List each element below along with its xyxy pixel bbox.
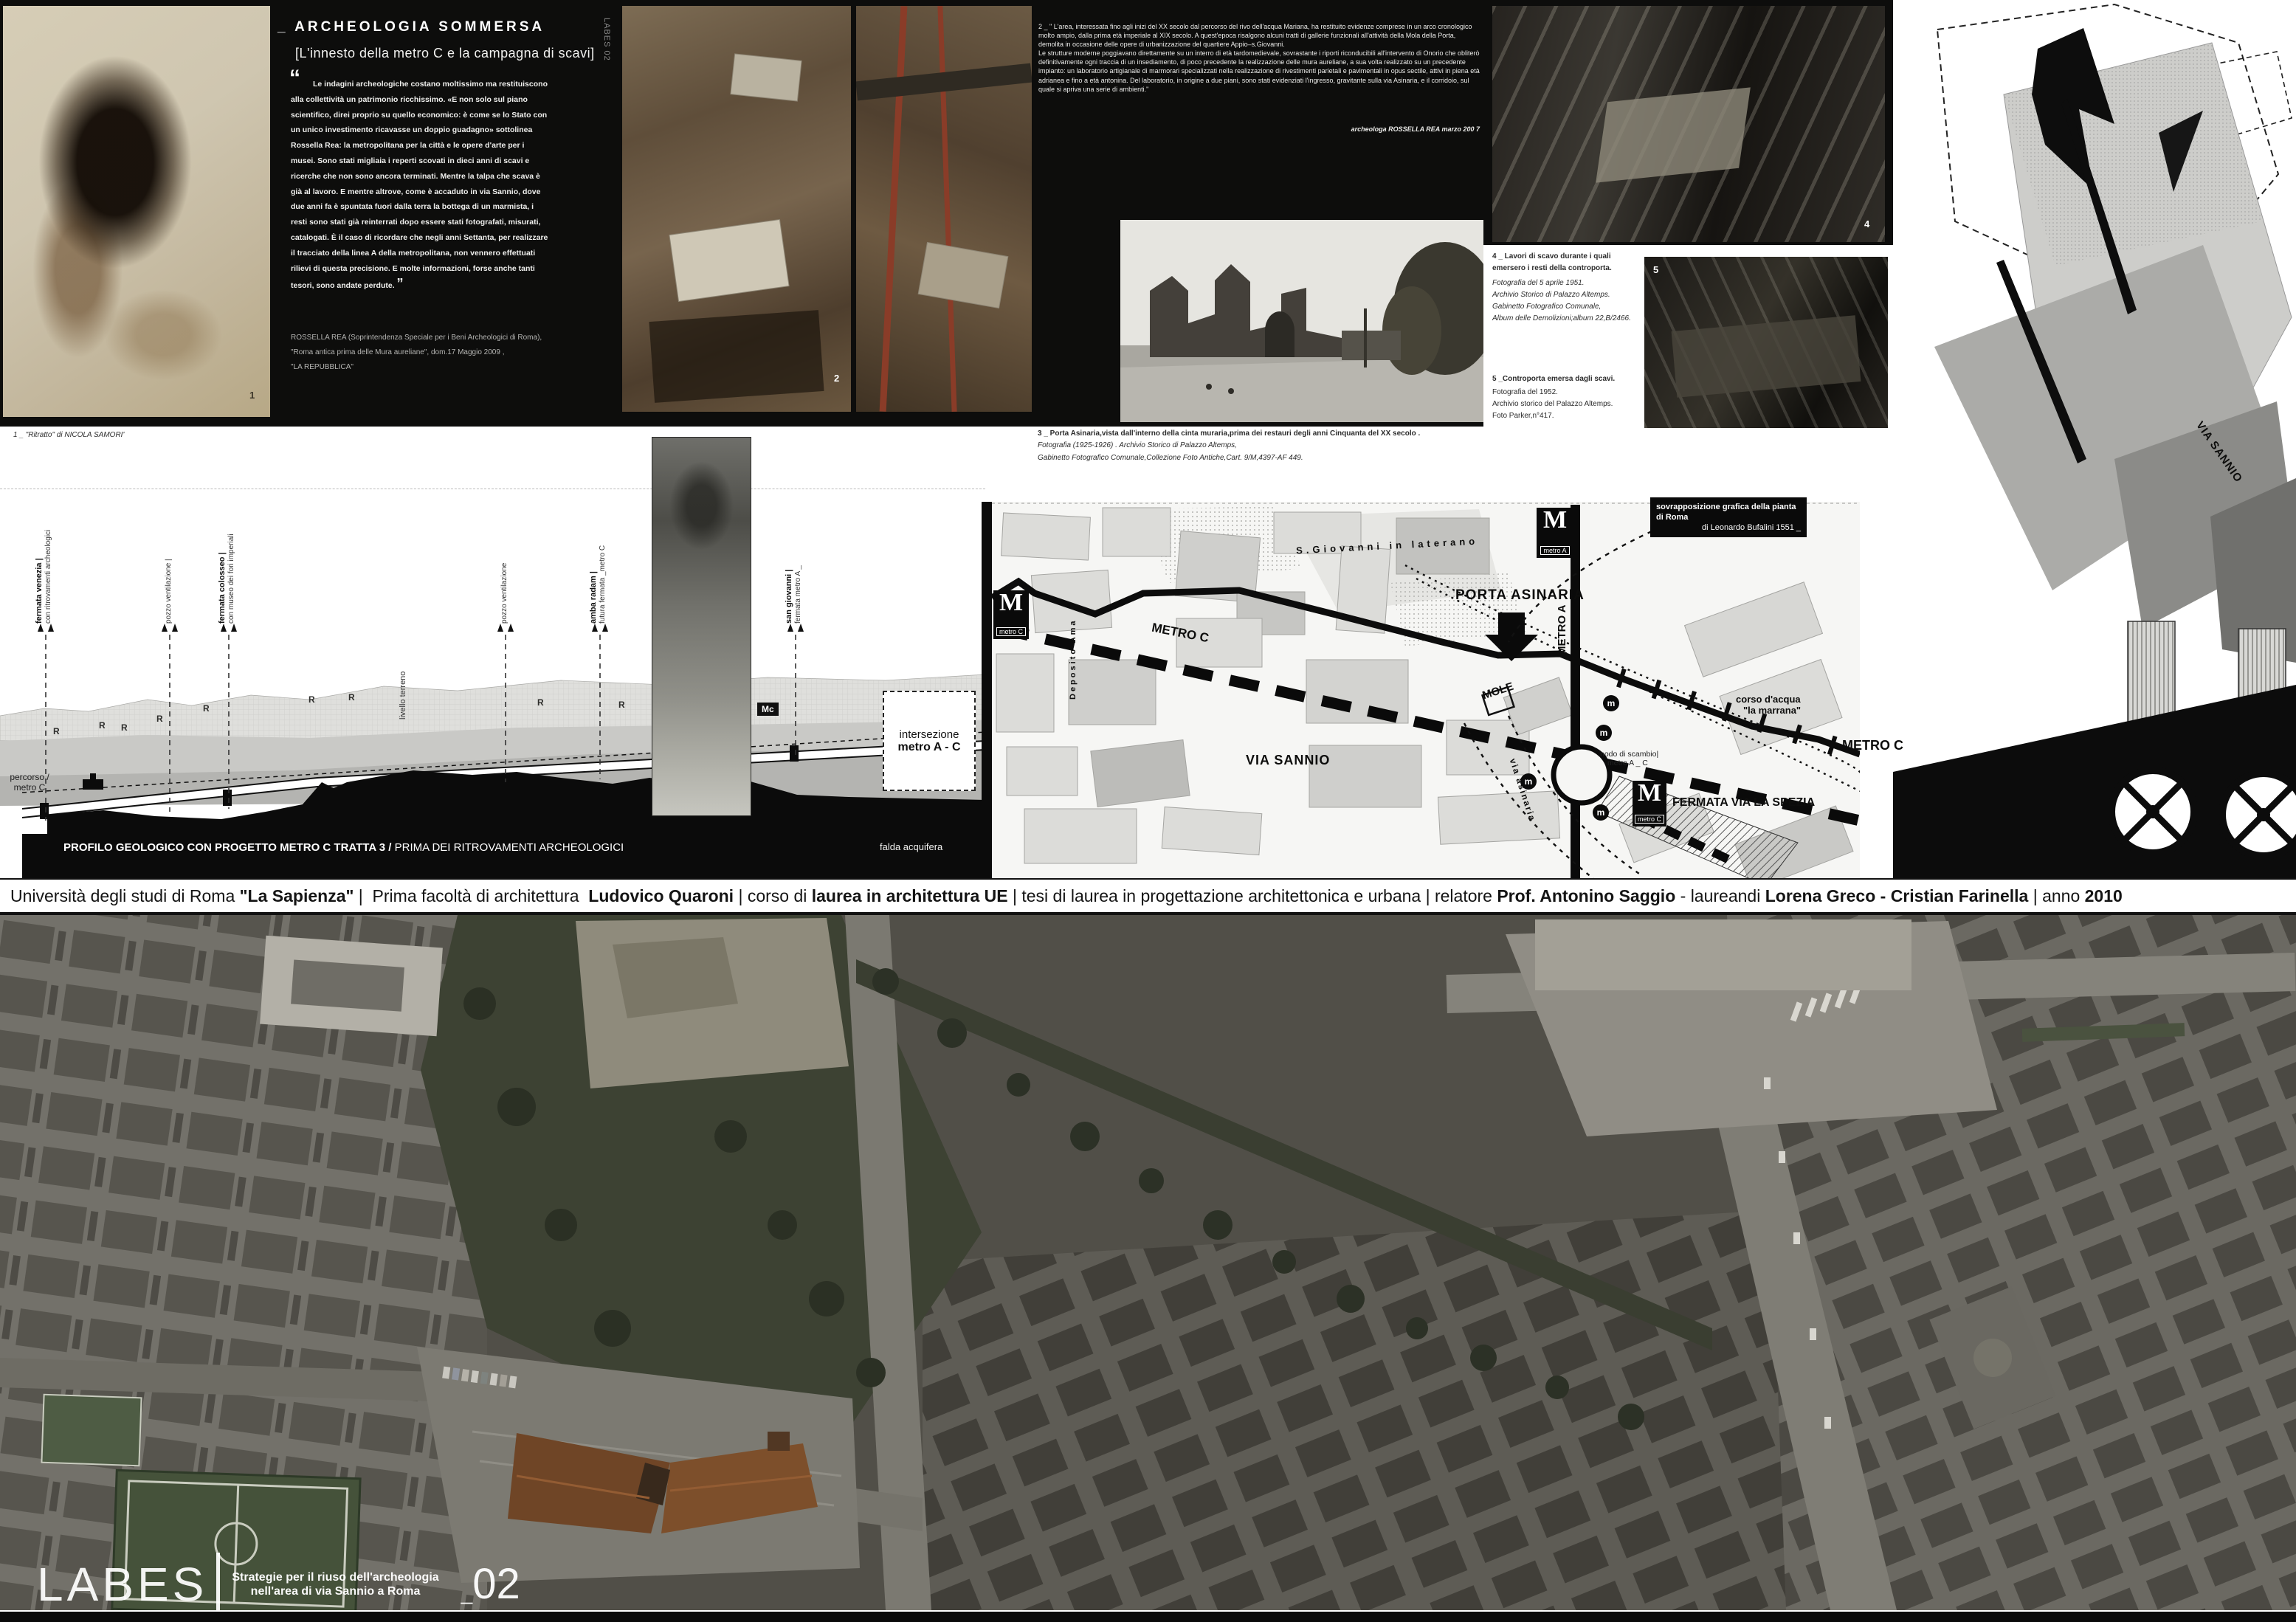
paragraph-2-attribution: archeologa ROSSELLA REA marzo 200 7: [1038, 125, 1480, 133]
geological-section-drawing: [0, 487, 985, 878]
paragraph-2: 2 _ " L'area, interessata fino agli iniz…: [1038, 22, 1480, 94]
excavation-slab: [669, 220, 788, 301]
m-marker: m: [1603, 695, 1619, 711]
excavation-photo-a: [622, 6, 851, 412]
quote-close-mark: ”: [397, 276, 404, 291]
mc-marker: Mc: [757, 703, 779, 716]
r-marker: R: [121, 722, 128, 733]
m-marker: m: [1596, 725, 1612, 741]
aerial-photo: [0, 915, 2296, 1610]
caption-5-rest: Fotografia del 1952. Archivio storico de…: [1492, 387, 1644, 422]
photo1-number: 1: [249, 390, 255, 401]
footer-logo-row: LABES Strategie per il riuso dell'archeo…: [37, 1553, 520, 1616]
site-photo-strip: [652, 437, 751, 816]
r-marker: R: [348, 692, 355, 703]
artwork-photo-ritratto: [3, 6, 270, 417]
excavation-wall-detail: [1672, 315, 1861, 397]
profile-label-colosseo: fermata colosseo | con museo dei fori im…: [218, 534, 236, 624]
excavation-slab: [919, 243, 1007, 308]
falda-acquifera-label: falda acquifera: [880, 841, 942, 852]
profile-label-livello-terreno: livello terreno: [399, 672, 407, 719]
small-court: [41, 1395, 141, 1466]
white-building: [260, 936, 443, 1036]
metro-a-badge: M metro A: [1537, 508, 1573, 558]
scaffold-pole: [937, 6, 956, 412]
board-title: _ ARCHEOLOGIA SOMMERSA: [277, 19, 545, 35]
profile-label-pozzo-1: pozzo ventilazione |: [165, 559, 173, 624]
quote-text: Le indagini archeologiche costano moltis…: [291, 80, 548, 290]
credits-course: laurea in architettura UE: [812, 886, 1008, 905]
r-marker: R: [537, 697, 544, 708]
urban-plan-map: [992, 502, 1860, 878]
wheel-circle: [2111, 770, 2194, 853]
profile-label-amba-radam: amba radam | futura fermata _metro C: [589, 545, 607, 624]
bottom-black-strip: [0, 1612, 2296, 1622]
quote-attribution: ROSSELLA REA (Soprintendenza Speciale pe…: [291, 331, 542, 375]
quote-block: “Le indagini archeologiche costano molti…: [291, 77, 551, 294]
station-box: [790, 745, 799, 762]
wheel-circle: [2222, 773, 2296, 856]
m-marker: m: [1520, 773, 1537, 790]
credits-faculty: Ludovico Quaroni: [588, 886, 734, 905]
map-frame-bar: [982, 502, 992, 878]
side-label: LABES 02: [602, 18, 611, 61]
metro-a-line: [1571, 505, 1580, 878]
board-number: _02: [461, 1565, 520, 1604]
quote-open-mark: “: [289, 71, 300, 86]
station-box: [223, 790, 232, 806]
caption-3: 3 _ Porta Asinaria,vista dall'interno de…: [1038, 429, 1466, 464]
intersezione-box: intersezione metro A - C: [883, 691, 976, 791]
profile-label-venezia: fermata venezia | con ritrovamenti arche…: [35, 530, 53, 624]
piazza-top-right: [1535, 919, 1911, 990]
bufalini-overlay-box: sovrapposizione grafica della pianta di …: [1650, 497, 1807, 537]
footer-divider: [216, 1553, 220, 1616]
caption-5: 5 _Controporta emersa dagli scavi. Fotog…: [1492, 373, 1644, 422]
r-marker: R: [99, 720, 106, 731]
footer-subtitle: Strategie per il riuso dell'archeologia …: [232, 1570, 438, 1598]
intervention-tower: [768, 1432, 790, 1451]
caption-4: 4 _ Lavori di scavo durante i quali emer…: [1492, 251, 1644, 325]
profile-label-san-giovanni: san giovanni | fermata metro A _: [785, 565, 803, 624]
nodo-di-scambio-label: nodo di scambio| metro A _ C: [1600, 750, 1658, 767]
scavo-photo-5: [1644, 257, 1888, 428]
r-marker: R: [203, 703, 210, 714]
r-marker: R: [53, 726, 60, 736]
profile-title: PROFILO GEOLOGICO CON PROGETTO METRO C T…: [63, 841, 624, 854]
excavation-photo-b: [856, 6, 1032, 412]
credits-band: Università degli studi di Roma "La Sapie…: [0, 878, 2296, 915]
scaffold-pole: [880, 6, 908, 412]
fermata-via-la-spezia-label: FERMATA VIA LA SPEZIA: [1672, 796, 1815, 810]
credits-laureandi: Lorena Greco - Cristian Farinella: [1765, 886, 2029, 905]
thesis-presentation-board: 1 1 _ "Ritratto" di NICOLA SAMORI' _ ARC…: [0, 0, 2296, 1622]
caption-1: 1 _ "Ritratto" di NICOLA SAMORI': [13, 431, 124, 439]
excavation-trench-shadow: [649, 310, 824, 403]
architectural-axonometric-drawing: [1893, 0, 2296, 878]
photo4-number: 4: [1864, 218, 1869, 230]
r-marker: R: [618, 700, 625, 710]
metro-c-badge-left: M metro C: [993, 590, 1029, 639]
metro-a-line-label: METRO A: [1556, 604, 1568, 655]
caption-5-bold: 5 _Controporta emersa dagli scavi.: [1492, 373, 1644, 385]
porta-asinaria-illustration: [1120, 220, 1483, 422]
labes-logo: LABES: [37, 1561, 207, 1608]
r-marker: R: [156, 714, 163, 724]
board-subtitle: [L'innesto della metro C e la campagna d…: [295, 46, 595, 61]
r-marker: R: [308, 694, 315, 705]
percorso-metro-c-label: percorso / metro C: [4, 772, 55, 793]
caption-3-italic: Fotografia (1925-1926) . Archivio Storic…: [1038, 439, 1466, 464]
metro-c-badge-bottom: M metro C: [1633, 781, 1666, 826]
city-blocks-bottom: [923, 1210, 1786, 1610]
credits-relatore: Prof. Antonino Saggio: [1497, 886, 1675, 905]
scavo-photo-4: [1492, 6, 1885, 242]
corso-acqua-label: corso d'acqua "la marrana": [1736, 694, 1801, 716]
caption-4-italic: Fotografia del 5 aprile 1951. Archivio S…: [1492, 277, 1644, 325]
porta-asinaria-photo: [1120, 220, 1483, 422]
caption-4-bold: 4 _ Lavori di scavo durante i quali emer…: [1492, 251, 1644, 275]
credits-university: Università degli studi di Roma: [10, 886, 240, 905]
porta-asinaria-label: PORTA ASINARIA: [1455, 587, 1585, 604]
credits-year: 2010: [2085, 886, 2123, 905]
deposito-ama-label: Deposito Ama: [1069, 618, 1078, 700]
caption-3-bold: 3 _ Porta Asinaria,vista dall'interno de…: [1038, 429, 1420, 438]
photo5-number: 5: [1653, 264, 1658, 275]
m-marker: m: [1593, 804, 1609, 821]
photo2-number: 2: [834, 373, 839, 384]
excavation-slab: [731, 54, 801, 100]
excavation-light-slab: [1596, 87, 1751, 182]
via-sannio-label: VIA SANNIO: [1246, 753, 1330, 768]
profile-label-pozzo-2: pozzo ventilazione: [500, 563, 509, 624]
